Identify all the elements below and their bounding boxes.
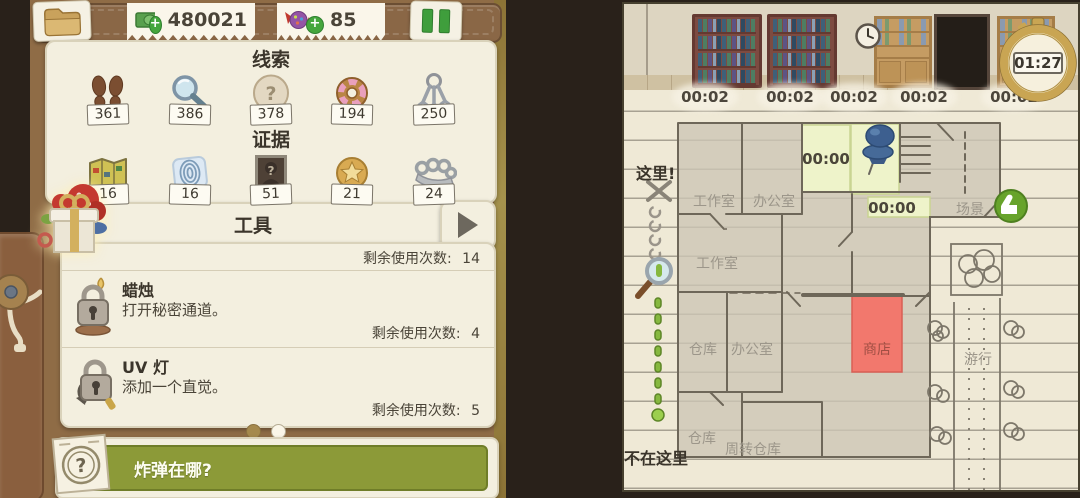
evidence-count: 24 [412, 183, 455, 205]
tool-name: UV 灯 [122, 354, 169, 378]
shop-room-highlight[interactable] [852, 296, 902, 372]
scene-thumbs-up-button[interactable] [995, 190, 1027, 222]
bookshelf [767, 14, 837, 88]
question-card: 炸弹在哪? [55, 437, 499, 498]
tool-item-candle[interactable]: 蜡烛 打开秘密通道。 剩余使用次数: 4 [62, 270, 494, 347]
question-text: 炸弹在哪? [134, 456, 212, 481]
tools-card: 剩余使用次数: 14 蜡烛 打开秘密通道。 剩余使用次数: 4 [60, 242, 496, 428]
evidence-count: 21 [331, 183, 374, 205]
evidence-photo[interactable]: ? 51 [235, 152, 307, 205]
flap-button-icon [0, 234, 42, 498]
question-note-icon: ? [48, 432, 114, 496]
room-timer: 00:00 [802, 150, 850, 168]
clue-count: 386 [168, 103, 211, 125]
question-bar[interactable]: 炸弹在哪? [64, 445, 488, 491]
money-value: 480021 [168, 9, 247, 31]
map-panel[interactable]: 00:02 00:02 00:02 00:02 00:02 01:27 [622, 2, 1080, 492]
clue-keys[interactable]: 250 [398, 72, 470, 125]
candle-lock-icon [70, 275, 118, 337]
clue-footprints[interactable]: 361 [72, 74, 144, 125]
not-here-label: 不在这里 [624, 449, 688, 468]
cabinet [874, 16, 932, 88]
room-label: 工作室 [693, 193, 735, 210]
pause-button[interactable] [409, 0, 462, 41]
here-label: 这里! [636, 164, 675, 183]
room-timer: 00:00 [868, 199, 916, 217]
clues-row: 361 386 ? 378 [47, 72, 495, 125]
bookshelf [692, 14, 762, 88]
add-money-button[interactable]: + [149, 16, 162, 34]
stopwatch: 01:27 [996, 16, 1080, 102]
tools-uses-header: 剩余使用次数: 14 [62, 244, 494, 270]
clue-count: 361 [87, 103, 130, 125]
evidence-title: 证据 [47, 125, 495, 152]
evidence-count: 16 [168, 183, 211, 205]
play-arrow-icon [456, 211, 480, 239]
gift-icon[interactable] [31, 174, 115, 258]
wall-clock-icon [855, 23, 881, 49]
tool-desc: 打开秘密通道。 [122, 299, 227, 320]
tool-uses: 剩余使用次数: 5 [372, 400, 480, 420]
add-candy-button[interactable]: + [306, 16, 324, 34]
clue-count: 250 [412, 103, 455, 125]
tool-name: 蜡烛 [122, 277, 154, 301]
clues-title: 线索 [47, 45, 495, 72]
clue-count: 378 [250, 103, 293, 125]
room-label: 周转仓库 [725, 442, 781, 458]
clue-count: 194 [331, 103, 374, 125]
evidence-knuckles[interactable]: 24 [398, 156, 470, 205]
tools-title: 工具 [234, 211, 272, 238]
money-counter: + 480021 [127, 3, 255, 41]
trail-end-dot [652, 409, 664, 421]
leather-flap[interactable] [0, 232, 44, 498]
room-label: 工作室 [696, 255, 738, 272]
uv-lamp-lock-icon [70, 352, 118, 414]
evidence-badge[interactable]: 21 [316, 154, 388, 205]
floor-plan[interactable]: 工作室 办公室 工作室 仓库 办公室 场景 游行 仓库 周转仓库 商店 00:0… [622, 102, 1080, 492]
doorway [934, 14, 990, 90]
room-label: 办公室 [753, 193, 795, 210]
folder-button[interactable] [32, 0, 91, 42]
svg-text:?: ? [265, 83, 276, 105]
uses-value: 14 [462, 251, 480, 267]
uses-label: 剩余使用次数: [363, 251, 452, 267]
room-label: 仓库 [688, 431, 716, 447]
evidence-count: 51 [250, 183, 293, 205]
map-magnifier-marker[interactable] [638, 259, 671, 296]
room-label: 仓库 [689, 342, 717, 358]
pause-icon [422, 9, 434, 33]
game-screen: + 480021 + 85 线索 [0, 0, 1080, 498]
room-label: 场景 [956, 202, 984, 218]
search-trail [648, 182, 670, 421]
svg-text:?: ? [268, 164, 275, 178]
candy-counter: + 85 [277, 3, 385, 41]
tool-item-uv-lamp[interactable]: UV 灯 添加一个直觉。 剩余使用次数: 5 [62, 347, 494, 424]
room-label-shop: 商店 [863, 342, 891, 358]
clue-magnifier[interactable]: 386 [154, 74, 226, 125]
evidence-fingerprint[interactable]: 16 [154, 154, 226, 205]
svg-text:?: ? [75, 455, 88, 478]
x-mark-icon [648, 182, 670, 200]
folder-icon [41, 4, 82, 37]
tool-uses: 剩余使用次数: 4 [372, 323, 480, 343]
candy-value: 85 [330, 9, 356, 31]
room-label: 游行 [964, 352, 992, 368]
tool-desc: 添加一个直觉。 [122, 376, 227, 397]
clue-donut[interactable]: 194 [316, 74, 388, 125]
room-label: 办公室 [731, 341, 773, 358]
stopwatch-time: 01:27 [1014, 54, 1062, 72]
clue-stone[interactable]: ? 378 [235, 74, 307, 125]
tools-header: 工具 [60, 202, 446, 246]
